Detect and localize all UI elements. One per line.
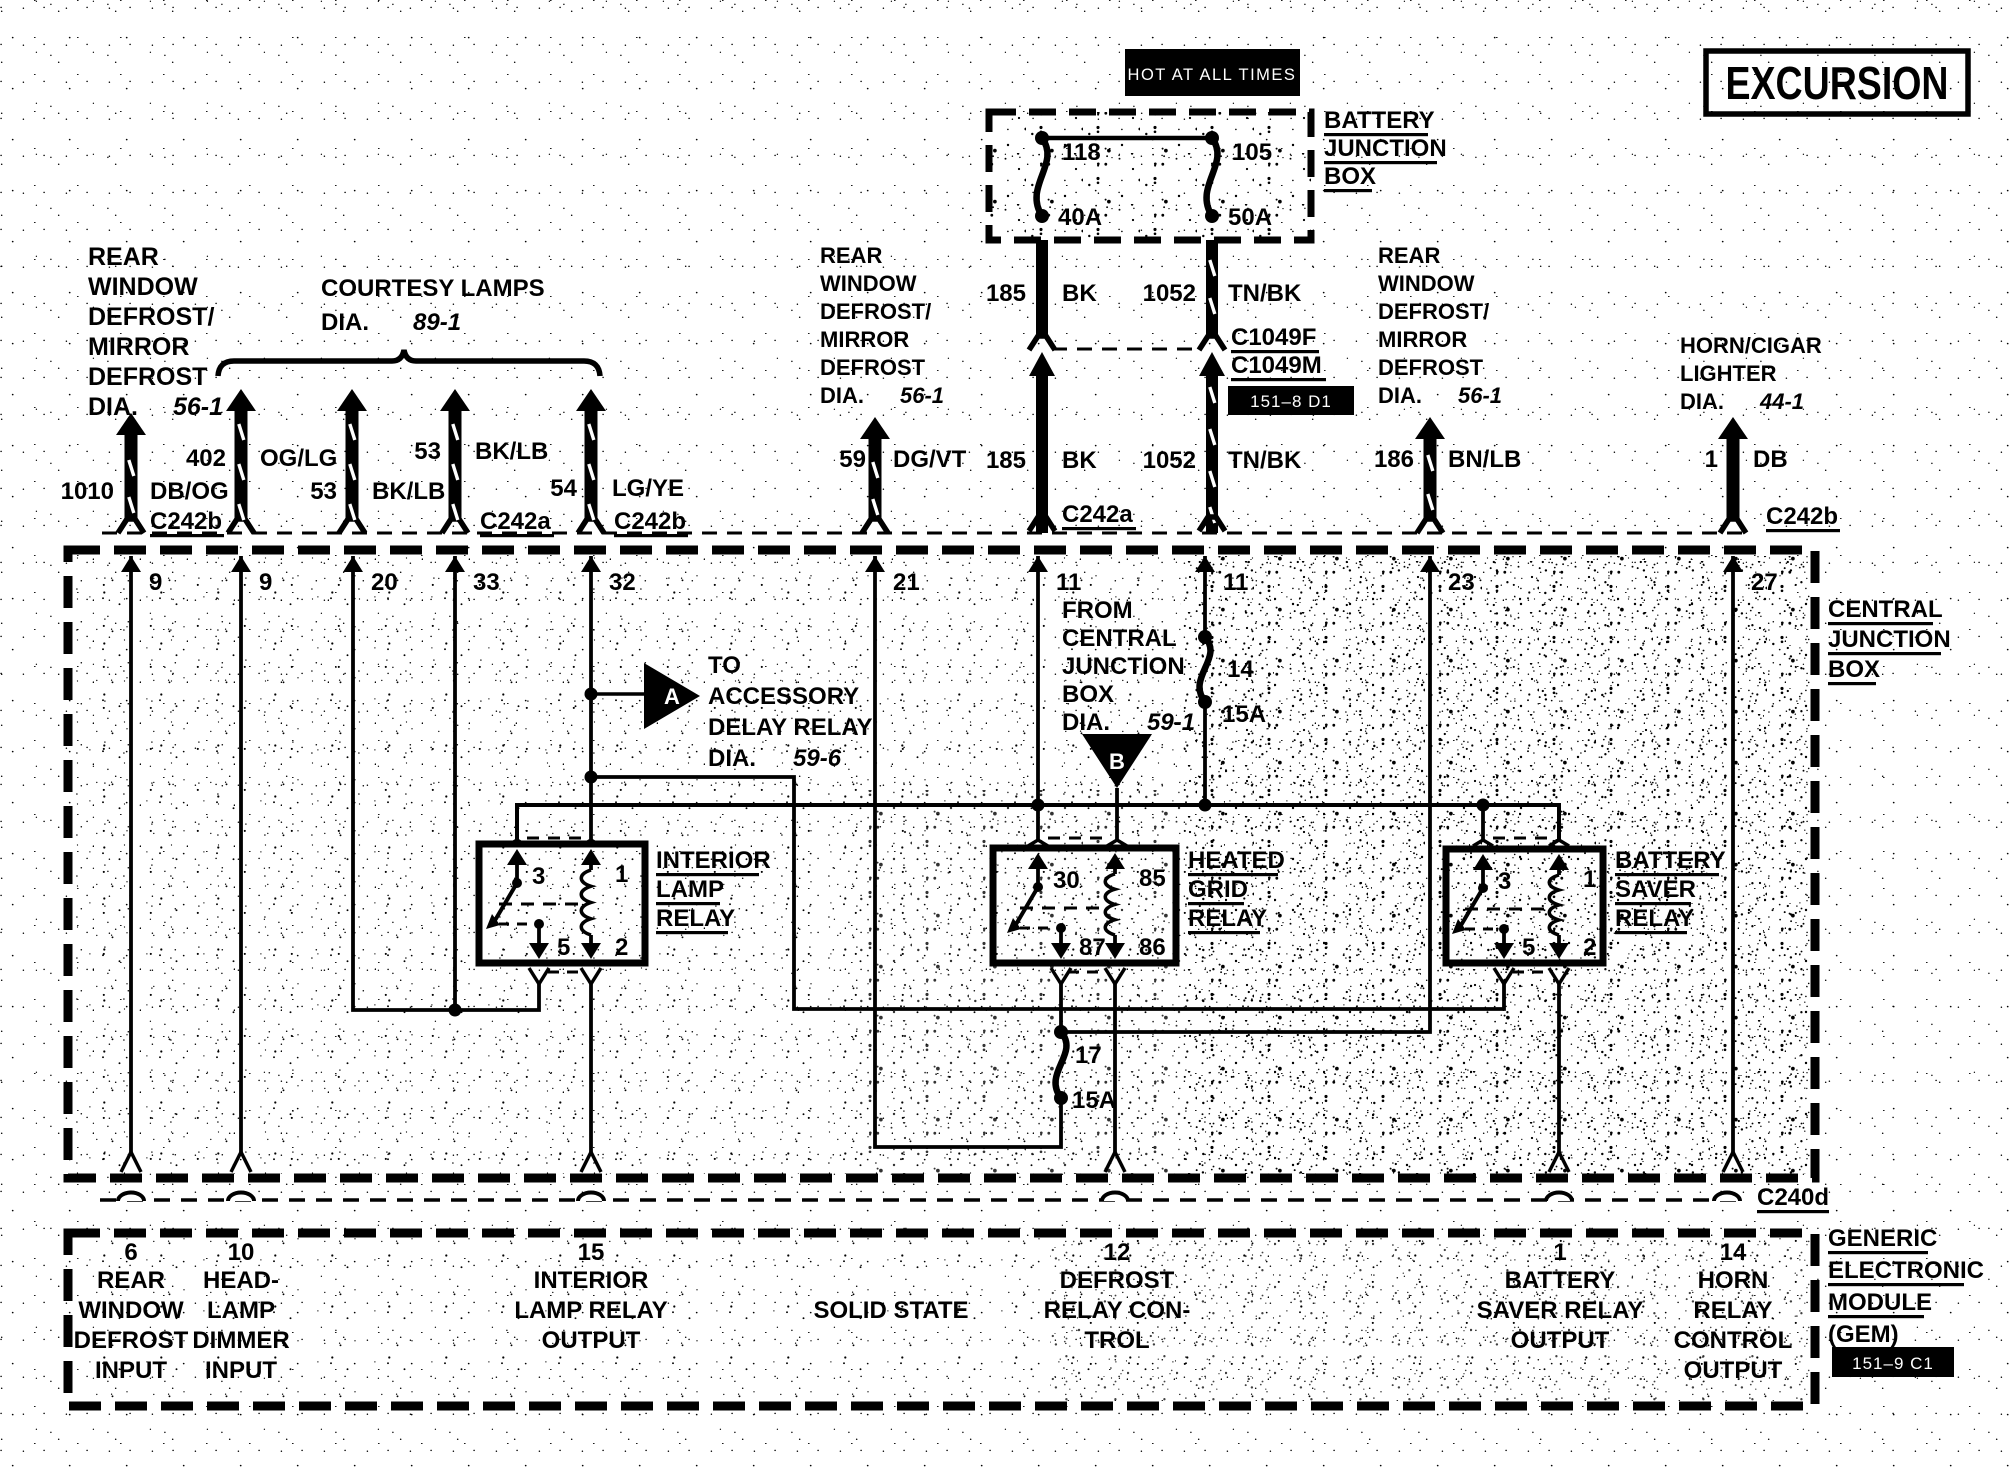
svg-text:REAR: REAR — [820, 243, 882, 268]
svg-text:3: 3 — [532, 863, 545, 890]
svg-text:WINDOW: WINDOW — [820, 271, 917, 296]
svg-text:HORN/CIGAR: HORN/CIGAR — [1680, 333, 1822, 358]
svg-text:OUTPUT: OUTPUT — [542, 1327, 641, 1354]
svg-text:LIGHTER: LIGHTER — [1680, 361, 1777, 386]
svg-text:DEFROST: DEFROST — [820, 355, 926, 380]
svg-text:DEFROST: DEFROST — [1378, 355, 1484, 380]
svg-text:RELAY CON-: RELAY CON- — [1044, 1297, 1191, 1324]
svg-text:TO: TO — [708, 652, 741, 679]
svg-text:2: 2 — [615, 934, 628, 961]
svg-text:RELAY: RELAY — [1188, 905, 1267, 932]
svg-text:21: 21 — [893, 569, 920, 596]
svg-text:MIRROR: MIRROR — [820, 327, 909, 352]
svg-text:C242a: C242a — [1062, 501, 1133, 528]
svg-text:9: 9 — [149, 569, 162, 596]
svg-text:9: 9 — [259, 569, 272, 596]
svg-text:DIA.: DIA. — [708, 745, 756, 772]
svg-text:33: 33 — [473, 569, 500, 596]
svg-text:27: 27 — [1751, 569, 1778, 596]
svg-text:INPUT: INPUT — [95, 1357, 167, 1384]
svg-text:HEATED: HEATED — [1188, 847, 1285, 874]
svg-text:56-1: 56-1 — [1458, 383, 1502, 408]
svg-text:INPUT: INPUT — [205, 1357, 277, 1384]
svg-text:53: 53 — [414, 438, 441, 465]
svg-text:JUNCTION: JUNCTION — [1828, 626, 1951, 653]
svg-text:GRID: GRID — [1188, 876, 1248, 903]
svg-text:DIMMER: DIMMER — [192, 1327, 289, 1354]
svg-text:BOX: BOX — [1324, 163, 1376, 190]
svg-text:20: 20 — [371, 569, 398, 596]
svg-text:BATTERY: BATTERY — [1324, 107, 1435, 134]
svg-text:1010: 1010 — [61, 478, 114, 505]
svg-text:DB/OG: DB/OG — [150, 478, 229, 505]
svg-text:WINDOW: WINDOW — [78, 1297, 184, 1324]
svg-text:30: 30 — [1053, 867, 1080, 894]
svg-text:40A: 40A — [1058, 204, 1102, 231]
svg-text:C242b: C242b — [1766, 503, 1838, 530]
svg-text:LG/YE: LG/YE — [612, 475, 684, 502]
svg-text:DEFROST: DEFROST — [74, 1327, 189, 1354]
svg-text:2: 2 — [1583, 934, 1596, 961]
svg-text:LAMP: LAMP — [656, 876, 724, 903]
svg-text:C242b: C242b — [614, 508, 686, 535]
svg-text:DIA.: DIA. — [1378, 383, 1422, 408]
svg-text:86: 86 — [1139, 934, 1166, 961]
svg-text:DIA.: DIA. — [1680, 389, 1724, 414]
svg-text:DIA.: DIA. — [820, 383, 864, 408]
svg-text:ELECTRONIC: ELECTRONIC — [1828, 1257, 1984, 1284]
svg-text:1: 1 — [1705, 446, 1718, 473]
svg-text:RELAY: RELAY — [656, 905, 735, 932]
svg-text:COURTESY LAMPS: COURTESY LAMPS — [321, 275, 545, 302]
svg-text:BK/LB: BK/LB — [372, 478, 445, 505]
svg-text:A: A — [664, 684, 680, 709]
svg-text:SOLID STATE: SOLID STATE — [813, 1297, 968, 1324]
svg-text:FROM: FROM — [1062, 597, 1133, 624]
svg-text:CENTRAL: CENTRAL — [1828, 596, 1943, 623]
svg-text:EXCURSION: EXCURSION — [1726, 57, 1949, 109]
svg-text:BK/LB: BK/LB — [475, 438, 548, 465]
svg-text:11: 11 — [1223, 569, 1248, 596]
svg-text:DEFROST/: DEFROST/ — [1378, 299, 1489, 324]
svg-text:BATTERY: BATTERY — [1615, 847, 1726, 874]
svg-text:56-1: 56-1 — [173, 393, 223, 421]
svg-text:MIRROR: MIRROR — [88, 333, 189, 361]
svg-text:DEFROST: DEFROST — [88, 363, 207, 391]
svg-text:14: 14 — [1720, 1239, 1747, 1266]
svg-text:REAR: REAR — [1378, 243, 1440, 268]
svg-text:1052: 1052 — [1143, 280, 1196, 307]
svg-text:186: 186 — [1374, 446, 1414, 473]
svg-text:DEFROST: DEFROST — [1060, 1267, 1175, 1294]
svg-text:15A: 15A — [1072, 1087, 1116, 1114]
svg-text:DIA.: DIA. — [1062, 709, 1110, 736]
svg-text:118: 118 — [1062, 139, 1101, 166]
svg-text:10: 10 — [228, 1239, 255, 1266]
svg-text:OG/LG: OG/LG — [260, 445, 337, 472]
svg-text:CENTRAL: CENTRAL — [1062, 625, 1177, 652]
svg-text:53: 53 — [310, 478, 337, 505]
svg-text:RELAY: RELAY — [1615, 905, 1694, 932]
svg-text:LAMP: LAMP — [207, 1297, 275, 1324]
svg-text:HOT AT ALL TIMES: HOT AT ALL TIMES — [1128, 66, 1297, 84]
svg-text:DG/VT: DG/VT — [893, 446, 967, 473]
svg-text:56-1: 56-1 — [900, 383, 944, 408]
svg-text:23: 23 — [1448, 569, 1475, 596]
svg-text:OUTPUT: OUTPUT — [1511, 1327, 1610, 1354]
svg-text:87: 87 — [1079, 934, 1106, 961]
svg-text:185: 185 — [986, 447, 1026, 474]
svg-text:DELAY RELAY: DELAY RELAY — [708, 714, 873, 741]
svg-text:CONTROL: CONTROL — [1674, 1327, 1793, 1354]
svg-text:151–8 D1: 151–8 D1 — [1250, 392, 1332, 411]
svg-text:59-6: 59-6 — [793, 745, 842, 772]
svg-text:DIA.: DIA. — [321, 309, 369, 336]
svg-text:15: 15 — [578, 1239, 605, 1266]
svg-text:TN/BK: TN/BK — [1228, 447, 1302, 474]
svg-text:DEFROST/: DEFROST/ — [820, 299, 931, 324]
svg-text:WINDOW: WINDOW — [1378, 271, 1475, 296]
svg-text:JUNCTION: JUNCTION — [1062, 653, 1185, 680]
svg-text:14: 14 — [1227, 656, 1254, 683]
svg-text:DEFROST/: DEFROST/ — [88, 303, 214, 331]
svg-text:59-1: 59-1 — [1147, 709, 1195, 736]
svg-text:OUTPUT: OUTPUT — [1684, 1357, 1783, 1384]
svg-text:185: 185 — [986, 280, 1026, 307]
svg-text:LAMP RELAY: LAMP RELAY — [514, 1297, 667, 1324]
svg-text:HORN: HORN — [1698, 1267, 1769, 1294]
svg-text:5: 5 — [557, 934, 570, 961]
svg-text:85: 85 — [1139, 865, 1166, 892]
svg-text:6: 6 — [124, 1239, 137, 1266]
svg-text:C1049F: C1049F — [1231, 324, 1316, 351]
svg-text:JUNCTION: JUNCTION — [1324, 135, 1447, 162]
svg-text:1: 1 — [1553, 1239, 1566, 1266]
svg-text:3: 3 — [1498, 868, 1511, 895]
svg-text:BK: BK — [1062, 280, 1097, 307]
svg-text:WINDOW: WINDOW — [88, 273, 198, 301]
svg-text:MODULE: MODULE — [1828, 1289, 1932, 1316]
svg-text:GENERIC: GENERIC — [1828, 1225, 1937, 1252]
svg-text:BK: BK — [1062, 447, 1097, 474]
svg-text:15A: 15A — [1222, 701, 1266, 728]
svg-text:59: 59 — [839, 446, 866, 473]
svg-text:SAVER: SAVER — [1615, 876, 1696, 903]
svg-text:11: 11 — [1056, 569, 1081, 596]
svg-text:B: B — [1109, 749, 1125, 774]
svg-text:BN/LB: BN/LB — [1448, 446, 1521, 473]
svg-text:50A: 50A — [1228, 204, 1272, 231]
svg-text:SAVER RELAY: SAVER RELAY — [1477, 1297, 1644, 1324]
svg-text:1: 1 — [1583, 866, 1596, 893]
svg-text:32: 32 — [609, 569, 636, 596]
svg-text:151–9 C1: 151–9 C1 — [1852, 1354, 1934, 1373]
svg-text:C242a: C242a — [480, 508, 551, 535]
svg-text:ACCESSORY: ACCESSORY — [708, 683, 859, 710]
svg-text:HEAD-: HEAD- — [203, 1267, 279, 1294]
svg-text:1052: 1052 — [1143, 447, 1196, 474]
svg-text:17: 17 — [1075, 1042, 1102, 1069]
svg-text:105: 105 — [1232, 139, 1272, 166]
svg-text:(GEM): (GEM) — [1828, 1321, 1899, 1348]
svg-text:C240d: C240d — [1757, 1184, 1829, 1211]
svg-text:54: 54 — [550, 475, 577, 502]
svg-text:TN/BK: TN/BK — [1228, 280, 1302, 307]
svg-text:MIRROR: MIRROR — [1378, 327, 1467, 352]
svg-text:C242b: C242b — [150, 508, 222, 535]
svg-text:BOX: BOX — [1062, 681, 1114, 708]
svg-text:5: 5 — [1522, 934, 1535, 961]
svg-text:C1049M: C1049M — [1231, 352, 1322, 379]
svg-text:INTERIOR: INTERIOR — [534, 1267, 649, 1294]
svg-text:44-1: 44-1 — [1759, 389, 1804, 414]
svg-text:402: 402 — [186, 445, 226, 472]
svg-text:12: 12 — [1104, 1239, 1131, 1266]
svg-text:RELAY: RELAY — [1693, 1297, 1772, 1324]
svg-text:TROL: TROL — [1084, 1327, 1149, 1354]
svg-text:1: 1 — [615, 861, 628, 888]
svg-text:DB: DB — [1753, 446, 1788, 473]
svg-text:BATTERY: BATTERY — [1505, 1267, 1616, 1294]
svg-text:REAR: REAR — [88, 243, 159, 271]
svg-text:89-1: 89-1 — [413, 309, 461, 336]
svg-text:BOX: BOX — [1828, 656, 1880, 683]
svg-text:INTERIOR: INTERIOR — [656, 847, 771, 874]
svg-text:REAR: REAR — [97, 1267, 165, 1294]
